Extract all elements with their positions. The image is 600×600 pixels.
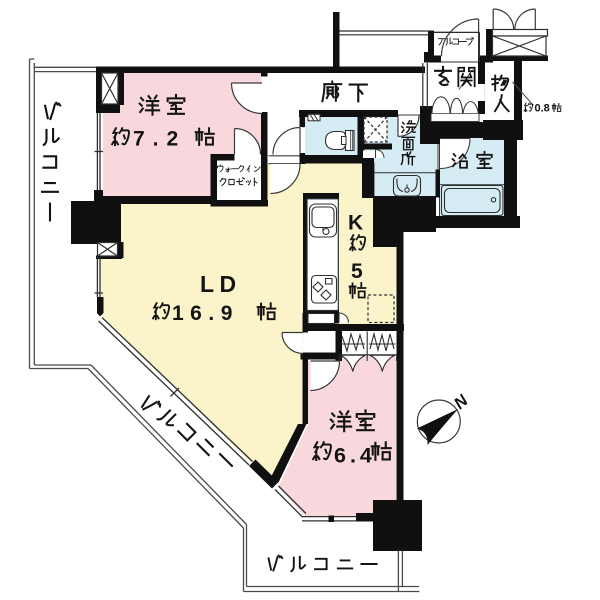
svg-text:LD: LD <box>200 271 242 297</box>
svg-text:16.9: 16.9 <box>172 302 239 325</box>
svg-text:K: K <box>348 212 363 235</box>
svg-text:5: 5 <box>351 260 363 283</box>
svg-text:6.4: 6.4 <box>334 444 376 468</box>
svg-text:0.8: 0.8 <box>535 103 550 115</box>
svg-text:7.2: 7.2 <box>133 128 186 151</box>
